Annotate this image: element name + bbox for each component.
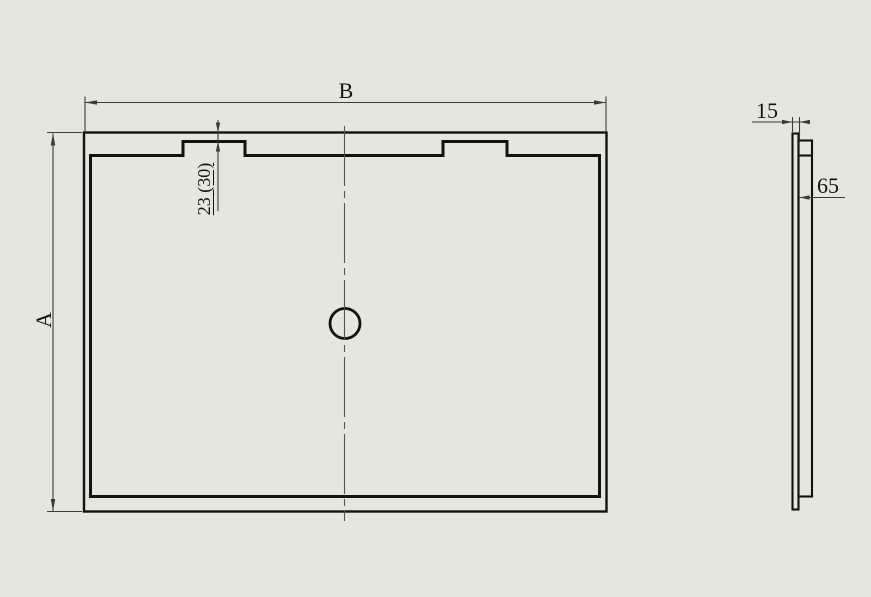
height-dimension-label: A [33, 300, 55, 340]
arrowhead-left [85, 100, 97, 105]
arrowhead-right [594, 100, 606, 105]
front-outer-outline [84, 133, 607, 512]
front-view [84, 126, 607, 521]
width-dimension-label: B [326, 80, 366, 102]
arrowhead-left [800, 120, 811, 124]
thickness-dimension-label: 15 [747, 100, 787, 122]
arrowhead-bottom [51, 499, 56, 511]
arrowhead-down [216, 123, 220, 133]
technical-drawing [0, 0, 871, 597]
arrowhead-top [51, 134, 56, 146]
tab-dimension-label: 23 (30) [195, 154, 213, 224]
rim-depth-dimension-label: 65 [808, 175, 848, 197]
drawing-canvas: B A 23 (30) 15 65 [0, 0, 871, 597]
